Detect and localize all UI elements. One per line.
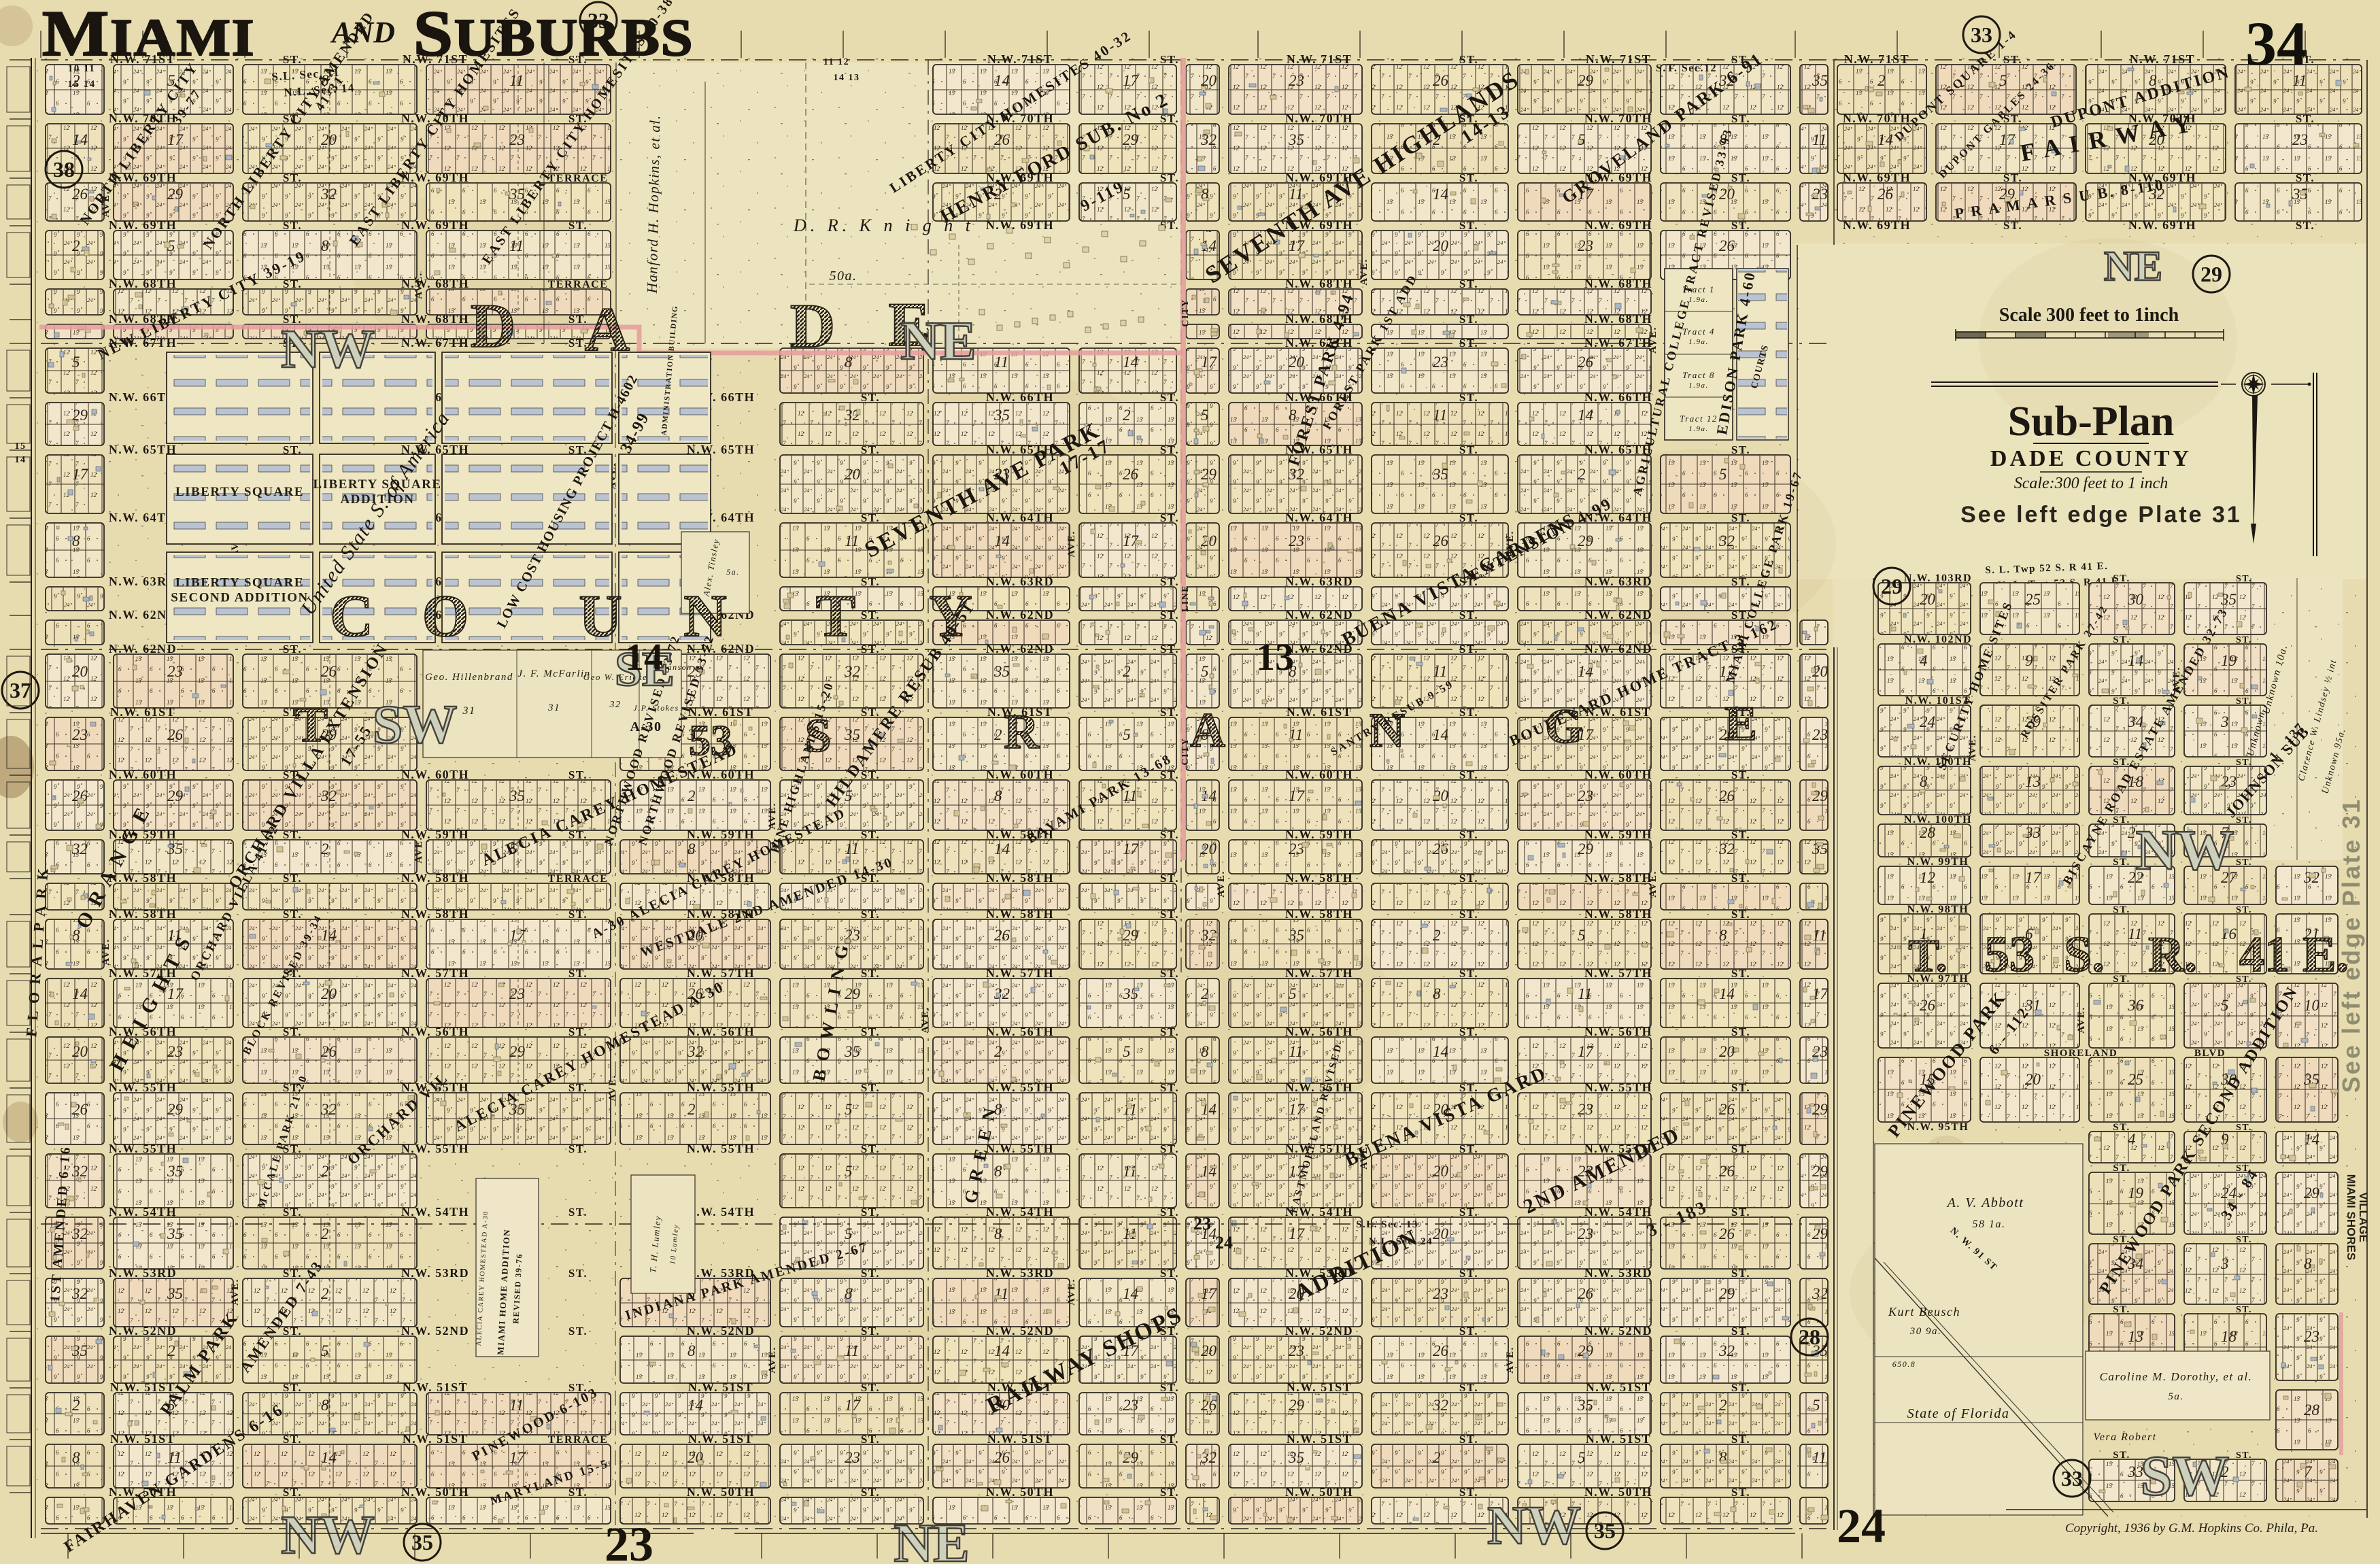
svg-text:Hanford H. Hopkins, et al.: Hanford H. Hopkins, et al.	[644, 114, 664, 294]
svg-text:N.W. 62ND: N.W. 62ND	[986, 608, 1054, 622]
svg-text:AVE.: AVE.	[2076, 1006, 2087, 1034]
svg-text:ST.: ST.	[283, 219, 302, 232]
svg-text:ST.: ST.	[1160, 1142, 1179, 1155]
svg-text:11: 11	[1812, 131, 1826, 148]
svg-text:ST.: ST.	[1160, 575, 1179, 588]
svg-text:N.W. 54TH: N.W. 54TH	[109, 1205, 177, 1219]
svg-text:TERRACE: TERRACE	[548, 873, 609, 885]
svg-text:S.L. Sec. 13: S.L. Sec. 13	[1356, 1219, 1418, 1230]
svg-text:ST.: ST.	[2236, 1450, 2252, 1461]
svg-text:29: 29	[1881, 574, 1903, 598]
svg-text:N.W. 51ST: N.W. 51ST	[688, 1380, 753, 1394]
svg-text:See left edge Plate 31: See left edge Plate 31	[1960, 502, 2242, 528]
svg-text:32: 32	[609, 700, 622, 710]
svg-text:TERRACE: TERRACE	[548, 173, 609, 184]
svg-text:N.W. 57TH: N.W. 57TH	[687, 966, 755, 980]
svg-text:14: 14	[15, 455, 27, 465]
svg-text:R.: R.	[2148, 927, 2197, 983]
svg-text:AVE.: AVE.	[413, 836, 424, 864]
svg-text:ST.: ST.	[1731, 575, 1750, 588]
svg-text:ST.: ST.	[283, 171, 302, 184]
svg-text:N.W. 54TH: N.W. 54TH	[687, 1205, 755, 1219]
svg-text:ST.: ST.	[2296, 112, 2315, 125]
svg-text:ST.: ST.	[1160, 1433, 1179, 1446]
svg-text:ST.: ST.	[1459, 828, 1478, 841]
svg-text:N.W. 99TH: N.W. 99TH	[1907, 856, 1969, 868]
svg-text:ST.: ST.	[1459, 1381, 1478, 1394]
svg-text:N.W. 58TH: N.W. 58TH	[1584, 907, 1652, 921]
svg-text:N.L. Sec. 24: N.L. Sec. 24	[1369, 1236, 1433, 1247]
svg-text:N.W. 60TH: N.W. 60TH	[1584, 768, 1652, 781]
svg-text:ST.: ST.	[1160, 967, 1179, 980]
svg-text:ST.: ST.	[1160, 872, 1179, 885]
svg-text:N.W. 51ST: N.W. 51ST	[1287, 1432, 1352, 1446]
svg-text:ST.: ST.	[1459, 706, 1478, 719]
svg-text:ST.: ST.	[1459, 1025, 1478, 1038]
svg-text:35: 35	[1812, 72, 1828, 89]
svg-text:1.9a.: 1.9a.	[1688, 338, 1709, 346]
svg-text:15: 15	[15, 441, 27, 452]
svg-text:State of Florida: State of Florida	[1907, 1406, 2010, 1421]
svg-text:N.W. 56TH: N.W. 56TH	[1584, 1025, 1652, 1038]
svg-text:ST.: ST.	[283, 908, 302, 921]
svg-text:A. V. Abbott: A. V. Abbott	[1946, 1195, 2024, 1210]
svg-text:N.W. 62ND: N.W. 62ND	[986, 642, 1054, 656]
svg-text:N.W. 51ST: N.W. 51ST	[110, 1380, 175, 1394]
svg-text:N.W. 70TH: N.W. 70TH	[1584, 112, 1652, 125]
svg-text:MIAMI SHORES: MIAMI SHORES	[2345, 1174, 2358, 1261]
svg-text:N.W. 51ST: N.W. 51ST	[1287, 1380, 1352, 1394]
svg-text:N.W. 55TH: N.W. 55TH	[109, 1142, 177, 1155]
svg-text:ST.: ST.	[2113, 974, 2130, 985]
svg-text:ST.: ST.	[1459, 171, 1478, 184]
svg-text:N.W. 57TH: N.W. 57TH	[1584, 966, 1652, 980]
svg-text:N.W. 68TH: N.W. 68TH	[401, 277, 469, 290]
svg-text:N.W. 50TH: N.W. 50TH	[687, 1485, 755, 1499]
svg-text:SW: SW	[2141, 1444, 2230, 1508]
svg-text:AVE.: AVE.	[230, 1278, 241, 1306]
svg-text:N.W. 103RD: N.W. 103RD	[1904, 573, 1972, 584]
svg-text:Kurt Beusch: Kurt Beusch	[1888, 1305, 1960, 1319]
svg-text:N.W. 71ST: N.W. 71ST	[2130, 52, 2195, 66]
svg-text:NW: NW	[1487, 1496, 1581, 1556]
svg-text:23: 23	[1812, 726, 1828, 743]
svg-text:N.W. 60TH: N.W. 60TH	[401, 768, 469, 781]
svg-text:N.W. 51ST: N.W. 51ST	[403, 1432, 468, 1446]
svg-text:ST.: ST.	[283, 1325, 302, 1338]
svg-text:ST.: ST.	[1459, 219, 1478, 232]
svg-text:ST.: ST.	[568, 219, 588, 232]
svg-text:ST.: ST.	[861, 1381, 880, 1394]
svg-text:30 9a.: 30 9a.	[1909, 1326, 1942, 1337]
svg-text:10 11: 10 11	[68, 63, 95, 74]
svg-text:38: 38	[53, 157, 75, 182]
svg-text:ST.: ST.	[568, 1025, 588, 1038]
svg-text:ST.: ST.	[861, 1081, 880, 1094]
svg-text:ST.: ST.	[1459, 1433, 1478, 1446]
svg-text:N.W. 71ST: N.W. 71ST	[1287, 52, 1352, 66]
svg-text:ST.: ST.	[2113, 904, 2130, 915]
svg-text:N.W. 51ST: N.W. 51ST	[987, 1432, 1053, 1446]
svg-text:N.W. 51ST: N.W. 51ST	[688, 1432, 753, 1446]
svg-text:AVE.: AVE.	[1648, 870, 1659, 898]
svg-text:ST.: ST.	[861, 967, 880, 980]
svg-text:N.W. 63RD: N.W. 63RD	[1584, 575, 1652, 588]
svg-text:N.W. 68TH: N.W. 68TH	[109, 277, 177, 290]
svg-text:11: 11	[1812, 927, 1826, 944]
svg-text:E: E	[1724, 696, 1757, 751]
svg-text:58 1a.: 58 1a.	[1973, 1219, 2006, 1230]
svg-text:N.W. 53RD: N.W. 53RD	[109, 1266, 177, 1280]
svg-text:ST.: ST.	[1160, 1381, 1179, 1394]
svg-text:ST.: ST.	[861, 511, 880, 524]
svg-text:ST.: ST.	[2236, 905, 2252, 915]
svg-text:ST.: ST.	[861, 575, 880, 588]
svg-text:AVE.: AVE.	[607, 1074, 618, 1102]
svg-text:SECOND ADDITION: SECOND ADDITION	[171, 591, 309, 605]
svg-text:N.W. 58TH: N.W. 58TH	[401, 907, 469, 921]
svg-text:ST.: ST.	[861, 908, 880, 921]
svg-text:ST.: ST.	[1160, 112, 1179, 125]
svg-text:AVE.: AVE.	[1066, 1278, 1077, 1306]
svg-text:D: D	[471, 291, 515, 360]
svg-text:N.W. 60TH: N.W. 60TH	[109, 768, 177, 781]
svg-text:T: T	[295, 698, 328, 752]
svg-text:ST.: ST.	[861, 1433, 880, 1446]
svg-text:ST.: ST.	[1731, 171, 1750, 184]
svg-text:N.W. 56TH: N.W. 56TH	[1285, 1025, 1353, 1038]
svg-text:S.T. Sec.12: S.T. Sec.12	[1656, 63, 1717, 74]
svg-text:ST.: ST.	[861, 1025, 880, 1038]
svg-text:N.W. 59TH: N.W. 59TH	[401, 828, 469, 841]
svg-text:NW: NW	[281, 320, 375, 379]
svg-text:N.W. 56TH: N.W. 56TH	[401, 1025, 469, 1038]
svg-text:SW: SW	[373, 695, 458, 755]
svg-text:ST.: ST.	[1731, 1267, 1750, 1280]
svg-text:AVE.: AVE.	[101, 938, 112, 966]
svg-text:650.8: 650.8	[1892, 1359, 1916, 1369]
svg-text:ST.: ST.	[2113, 857, 2130, 868]
svg-text:ST.: ST.	[861, 1325, 880, 1338]
svg-text:T: T	[816, 583, 856, 649]
svg-text:ST.: ST.	[1459, 1267, 1478, 1280]
svg-text:N: N	[683, 583, 727, 649]
svg-text:ST.: ST.	[1731, 1081, 1750, 1094]
svg-text:ST.: ST.	[2113, 573, 2130, 584]
svg-text:28: 28	[1799, 1325, 1820, 1349]
svg-text:LIBERTY SQUARE: LIBERTY SQUARE	[175, 485, 304, 499]
svg-text:N.W. 55TH: N.W. 55TH	[986, 1081, 1054, 1094]
svg-text:N.W. 58TH: N.W. 58TH	[1285, 871, 1353, 885]
svg-text:ST.: ST.	[2113, 815, 2130, 826]
svg-text:ST.: ST.	[1459, 768, 1478, 781]
svg-text:NE: NE	[2104, 243, 2162, 290]
svg-text:Tract 12: Tract 12	[1680, 413, 1718, 424]
svg-text:41: 41	[2239, 927, 2290, 983]
svg-text:A: A	[585, 294, 630, 364]
svg-text:ST.: ST.	[568, 1206, 588, 1219]
svg-text:Copyright, 1936 by G.M. Hopkin: Copyright, 1936 by G.M. Hopkins Co. Phil…	[2065, 1521, 2318, 1535]
svg-text:TERRACE: TERRACE	[548, 1434, 609, 1446]
svg-text:ST.: ST.	[1160, 828, 1179, 841]
svg-text:ST.: ST.	[1731, 1433, 1750, 1446]
svg-text:N.W. 52ND: N.W. 52ND	[109, 1324, 177, 1338]
svg-text:ST.: ST.	[1160, 511, 1179, 524]
svg-text:ST.: ST.	[1160, 391, 1179, 404]
svg-text:1.9a.: 1.9a.	[1688, 425, 1709, 433]
svg-text:N.W. 61ST: N.W. 61ST	[110, 705, 175, 719]
svg-text:U: U	[579, 583, 622, 649]
svg-text:N.W. 58TH: N.W. 58TH	[109, 907, 177, 921]
svg-text:N.W. 70TH: N.W. 70TH	[1843, 112, 1911, 125]
svg-text:ST.: ST.	[283, 1381, 302, 1394]
svg-text:35: 35	[1594, 1518, 1616, 1543]
svg-text:A: A	[1190, 703, 1225, 758]
svg-text:ST.: ST.	[1731, 768, 1750, 781]
svg-text:ST.: ST.	[1731, 1025, 1750, 1038]
svg-text:ST.: ST.	[1459, 967, 1478, 980]
svg-text:31: 31	[462, 705, 476, 717]
svg-text:AVE.: AVE.	[1359, 258, 1370, 286]
svg-text:N.W. 53RD: N.W. 53RD	[1584, 1266, 1652, 1280]
svg-text:NW: NW	[281, 1506, 375, 1564]
svg-text:N.W. 58TH: N.W. 58TH	[401, 871, 469, 885]
svg-text:LINE: LINE	[1180, 585, 1191, 612]
svg-text:ST.: ST.	[1731, 511, 1750, 524]
svg-text:N.W. 98TH: N.W. 98TH	[1907, 904, 1969, 915]
svg-text:34: 34	[2245, 9, 2308, 78]
svg-text:ST.: ST.	[2236, 1235, 2252, 1245]
svg-text:ST.: ST.	[1160, 171, 1179, 184]
svg-text:VILLAGE: VILLAGE	[2357, 1192, 2370, 1242]
svg-text:N.W. 50TH: N.W. 50TH	[1285, 1485, 1353, 1499]
svg-text:See left edge Plate 31: See left edge Plate 31	[2337, 798, 2365, 1093]
svg-text:ST.: ST.	[568, 1142, 588, 1155]
svg-text:ST.: ST.	[1731, 1381, 1750, 1394]
svg-text:33: 33	[1971, 22, 1992, 47]
svg-text:ST.: ST.	[1731, 828, 1750, 841]
svg-text:N.W. 102ND: N.W. 102ND	[1904, 634, 1972, 645]
svg-text:N.W. 62ND: N.W. 62ND	[109, 642, 177, 656]
svg-text:ST.: ST.	[2236, 696, 2252, 707]
svg-text:ST.: ST.	[1459, 872, 1478, 885]
svg-text:N.W. 60TH: N.W. 60TH	[986, 768, 1054, 781]
svg-text:O: O	[422, 583, 469, 649]
svg-text:ST.: ST.	[568, 1081, 588, 1094]
svg-text:ST.: ST.	[861, 706, 880, 719]
svg-text:N.W. 52ND: N.W. 52ND	[687, 1324, 755, 1338]
svg-text:N.W. 53RD: N.W. 53RD	[401, 1266, 469, 1280]
svg-text:N.W. 51ST: N.W. 51ST	[403, 1380, 468, 1394]
svg-text:LIBERTY SQUARE: LIBERTY SQUARE	[313, 477, 441, 492]
svg-text:N.W. 52ND: N.W. 52ND	[1285, 1324, 1353, 1338]
svg-text:N.W. 62ND: N.W. 62ND	[1285, 642, 1353, 656]
svg-text:ST.: ST.	[1731, 967, 1750, 980]
svg-text:N.W. 55TH: N.W. 55TH	[109, 1081, 177, 1094]
svg-text:ST.: ST.	[1160, 1081, 1179, 1094]
svg-text:Tract 8: Tract 8	[1682, 370, 1715, 380]
svg-text:ST.: ST.	[2236, 758, 2252, 768]
svg-text:N.W. 62ND: N.W. 62ND	[1584, 642, 1652, 656]
svg-text:N.W. 55TH: N.W. 55TH	[401, 1142, 469, 1155]
svg-text:N.W. 55TH: N.W. 55TH	[986, 1142, 1054, 1155]
svg-text:ST.: ST.	[2113, 634, 2130, 645]
svg-text:N.W. 50TH: N.W. 50TH	[401, 1485, 469, 1499]
svg-text:ST.: ST.	[283, 872, 302, 885]
svg-text:ST.: ST.	[1160, 609, 1179, 622]
svg-text:23: 23	[1193, 1214, 1211, 1234]
svg-text:N.W. 95TH: N.W. 95TH	[1907, 1121, 1969, 1133]
svg-text:N.W. 68TH: N.W. 68TH	[401, 312, 469, 326]
svg-text:Vera Robert: Vera Robert	[2093, 1431, 2156, 1443]
svg-text:N.W. 63RD: N.W. 63RD	[1285, 575, 1353, 588]
svg-text:TERRACE: TERRACE	[548, 279, 609, 290]
svg-text:N.W. 54TH: N.W. 54TH	[986, 1205, 1054, 1219]
svg-text:N.W. 69TH: N.W. 69TH	[1584, 218, 1652, 232]
svg-text:ST.: ST.	[1459, 609, 1478, 622]
svg-text:Scale 300 feet to 1inch: Scale 300 feet to 1inch	[1999, 305, 2179, 326]
svg-text:ST.: ST.	[568, 1267, 588, 1280]
svg-text:24: 24	[1215, 1233, 1233, 1253]
svg-text:N.W. 52ND: N.W. 52ND	[401, 1324, 469, 1338]
svg-text:N.W. 52ND: N.W. 52ND	[1584, 1324, 1652, 1338]
svg-text:ST.: ST.	[1459, 443, 1478, 456]
svg-text:ST.: ST.	[1160, 1206, 1179, 1219]
svg-text:R: R	[1004, 704, 1040, 759]
svg-text:ST.: ST.	[283, 277, 302, 290]
svg-text:ST.: ST.	[1160, 443, 1179, 456]
svg-text:N.W. 50TH: N.W. 50TH	[986, 1485, 1054, 1499]
svg-text:ST.: ST.	[2296, 171, 2315, 184]
svg-text:N.W. 100TH: N.W. 100TH	[1904, 814, 1972, 826]
svg-text:ST.: ST.	[1459, 313, 1478, 326]
svg-text:MIAMI: MIAMI	[42, 0, 255, 69]
svg-text:ST.: ST.	[861, 1206, 880, 1219]
svg-text:N.W. 56TH: N.W. 56TH	[687, 1025, 755, 1038]
svg-text:J. F. McFarlin: J. F. McFarlin	[517, 668, 590, 679]
svg-text:ST.: ST.	[2236, 1305, 2252, 1315]
svg-text:N.W. 59TH: N.W. 59TH	[687, 828, 755, 841]
svg-text:N.W. 71ST: N.W. 71ST	[987, 52, 1053, 66]
svg-text:29: 29	[1812, 1101, 1829, 1118]
svg-text:ST.: ST.	[861, 1267, 880, 1280]
svg-text:N.W. 64TH: N.W. 64TH	[986, 511, 1054, 524]
svg-text:N.W. 61ST: N.W. 61ST	[1287, 705, 1352, 719]
svg-text:53: 53	[1984, 927, 2035, 983]
svg-text:N.W. 67TH: N.W. 67TH	[1584, 336, 1652, 350]
svg-text:ST.: ST.	[283, 1486, 302, 1499]
svg-text:ST.: ST.	[1160, 1025, 1179, 1038]
svg-text:SHORELAND: SHORELAND	[2044, 1048, 2118, 1059]
svg-text:Sub-Plan: Sub-Plan	[2008, 398, 2175, 445]
svg-text:ST.: ST.	[861, 1486, 880, 1499]
svg-text:N.W. 68TH: N.W. 68TH	[1584, 312, 1652, 326]
svg-text:ST.: ST.	[861, 609, 880, 622]
svg-text:N.W. 57TH: N.W. 57TH	[986, 966, 1054, 980]
svg-text:5a.: 5a.	[726, 567, 740, 577]
svg-text:D: D	[790, 291, 835, 360]
svg-text:AVE.: AVE.	[1967, 734, 1978, 762]
svg-text:ST.: ST.	[861, 828, 880, 841]
svg-text:ST.: ST.	[568, 1486, 588, 1499]
svg-text:N.W. 59TH: N.W. 59TH	[1285, 828, 1353, 841]
svg-text:N.W. 68TH: N.W. 68TH	[1285, 277, 1353, 290]
svg-text:24: 24	[1837, 1499, 1886, 1553]
svg-text:C: C	[330, 583, 373, 649]
svg-text:Scale:300 feet to 1 inch: Scale:300 feet to 1 inch	[2014, 475, 2169, 492]
svg-text:N.W. 51ST: N.W. 51ST	[1586, 1432, 1651, 1446]
svg-text:ST.: ST.	[283, 1433, 302, 1446]
svg-text:ST.: ST.	[568, 768, 588, 781]
svg-text:N.W. 66TH: N.W. 66TH	[1584, 390, 1652, 404]
svg-text:AVE.: AVE.	[1648, 326, 1659, 354]
svg-text:ST.: ST.	[1160, 706, 1179, 719]
svg-text:N.W. 55TH: N.W. 55TH	[1285, 1081, 1353, 1094]
svg-text:ST.: ST.	[2236, 857, 2252, 868]
svg-text:ST.: ST.	[2113, 1163, 2130, 1174]
svg-text:N.W. 57TH: N.W. 57TH	[1285, 966, 1353, 980]
svg-text:ST.: ST.	[1459, 391, 1478, 404]
svg-text:N.W. 52ND: N.W. 52ND	[986, 1324, 1054, 1338]
svg-text:ST.: ST.	[283, 828, 302, 841]
svg-text:N.W. 69TH: N.W. 69TH	[986, 218, 1054, 232]
svg-text:N.W. 69TH: N.W. 69TH	[401, 218, 469, 232]
svg-text:N.W. 57TH: N.W. 57TH	[401, 966, 469, 980]
svg-text:ST.: ST.	[1731, 1325, 1750, 1338]
svg-text:Tract 4: Tract 4	[1682, 326, 1715, 337]
svg-text:N.W. 55TH: N.W. 55TH	[687, 1142, 755, 1155]
svg-text:ST.: ST.	[568, 1325, 588, 1338]
svg-text:DADE COUNTY: DADE COUNTY	[1990, 446, 2192, 471]
svg-text:ST.: ST.	[1459, 1486, 1478, 1499]
svg-text:AVE.: AVE.	[413, 272, 424, 299]
svg-text:AVE.: AVE.	[920, 1006, 931, 1034]
svg-text:N.W. 67TH: N.W. 67TH	[401, 336, 469, 350]
svg-text:50a.: 50a.	[830, 269, 857, 284]
svg-text:T.: T.	[1908, 930, 1947, 981]
svg-text:15 14: 15 14	[67, 79, 95, 90]
svg-text:14: 14	[625, 636, 663, 679]
svg-text:LIBERTY SQUARE: LIBERTY SQUARE	[175, 576, 304, 590]
svg-text:S: S	[805, 710, 832, 762]
svg-text:ST.: ST.	[2236, 1123, 2252, 1133]
svg-text:N.W. 71ST: N.W. 71ST	[1844, 52, 1909, 66]
svg-text:ST.: ST.	[1731, 1206, 1750, 1219]
svg-text:AVE.: AVE.	[1216, 870, 1227, 898]
svg-text:ST.: ST.	[861, 443, 880, 456]
svg-text:BLVD: BLVD	[2194, 1048, 2226, 1059]
svg-text:N.W. 68TH: N.W. 68TH	[1584, 277, 1652, 290]
svg-text:N.W. 55TH: N.W. 55TH	[687, 1081, 755, 1094]
svg-text:ST.: ST.	[1731, 112, 1750, 125]
svg-text:ST.: ST.	[2236, 574, 2252, 584]
svg-text:13: 13	[1256, 636, 1294, 679]
svg-text:14 13: 14 13	[834, 73, 860, 83]
svg-text:Y: Y	[929, 583, 972, 649]
svg-text:N.W. 53RD: N.W. 53RD	[986, 1266, 1054, 1280]
svg-text:N.W. 54TH: N.W. 54TH	[401, 1205, 469, 1219]
svg-text:ST.: ST.	[2113, 1450, 2130, 1461]
svg-text:G: G	[1545, 699, 1583, 753]
svg-text:CITY: CITY	[1180, 299, 1191, 326]
svg-text:Caroline M. Dorothy, et al.: Caroline M. Dorothy, et al.	[2100, 1370, 2253, 1383]
svg-text:ST.: ST.	[1459, 908, 1478, 921]
svg-text:ST.: ST.	[1160, 908, 1179, 921]
svg-text:ST.: ST.	[2003, 219, 2022, 232]
svg-text:33: 33	[2061, 1466, 2083, 1491]
svg-text:N.W. 51ST: N.W. 51ST	[110, 1432, 175, 1446]
svg-text:1.9a.: 1.9a.	[1688, 381, 1709, 390]
